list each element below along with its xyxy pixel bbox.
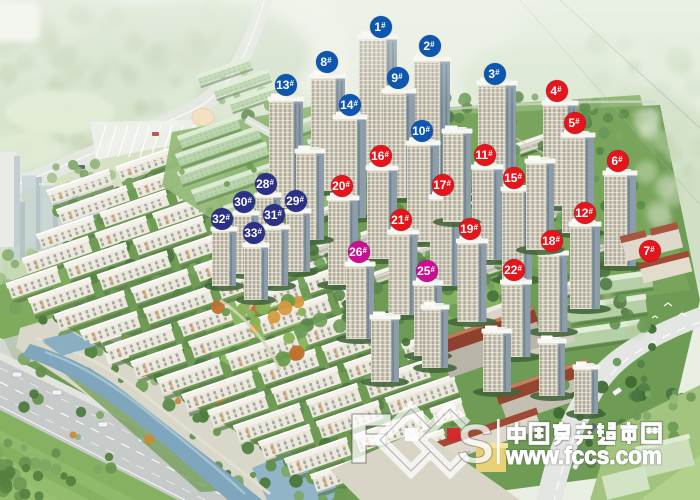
svg-text:www.fccs.com: www.fccs.com xyxy=(505,442,662,470)
svg-text:S: S xyxy=(457,412,494,475)
